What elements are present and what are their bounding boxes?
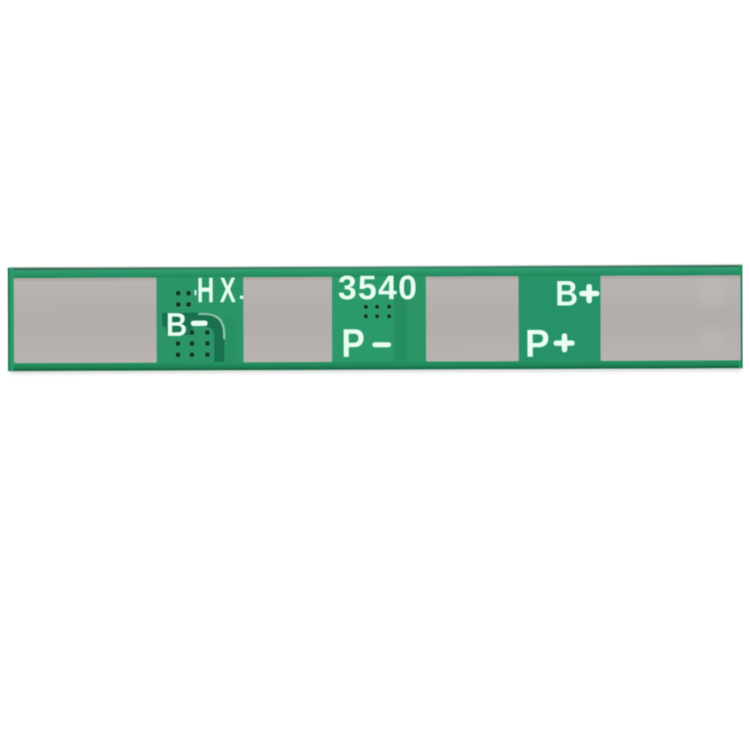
svg-text:B: B	[166, 306, 188, 343]
svg-text:HX: HX	[197, 272, 241, 311]
svg-text:P: P	[341, 321, 365, 366]
svg-text:P: P	[525, 323, 550, 366]
svg-text:3540: 3540	[338, 269, 419, 307]
svg-text:B: B	[555, 275, 578, 314]
